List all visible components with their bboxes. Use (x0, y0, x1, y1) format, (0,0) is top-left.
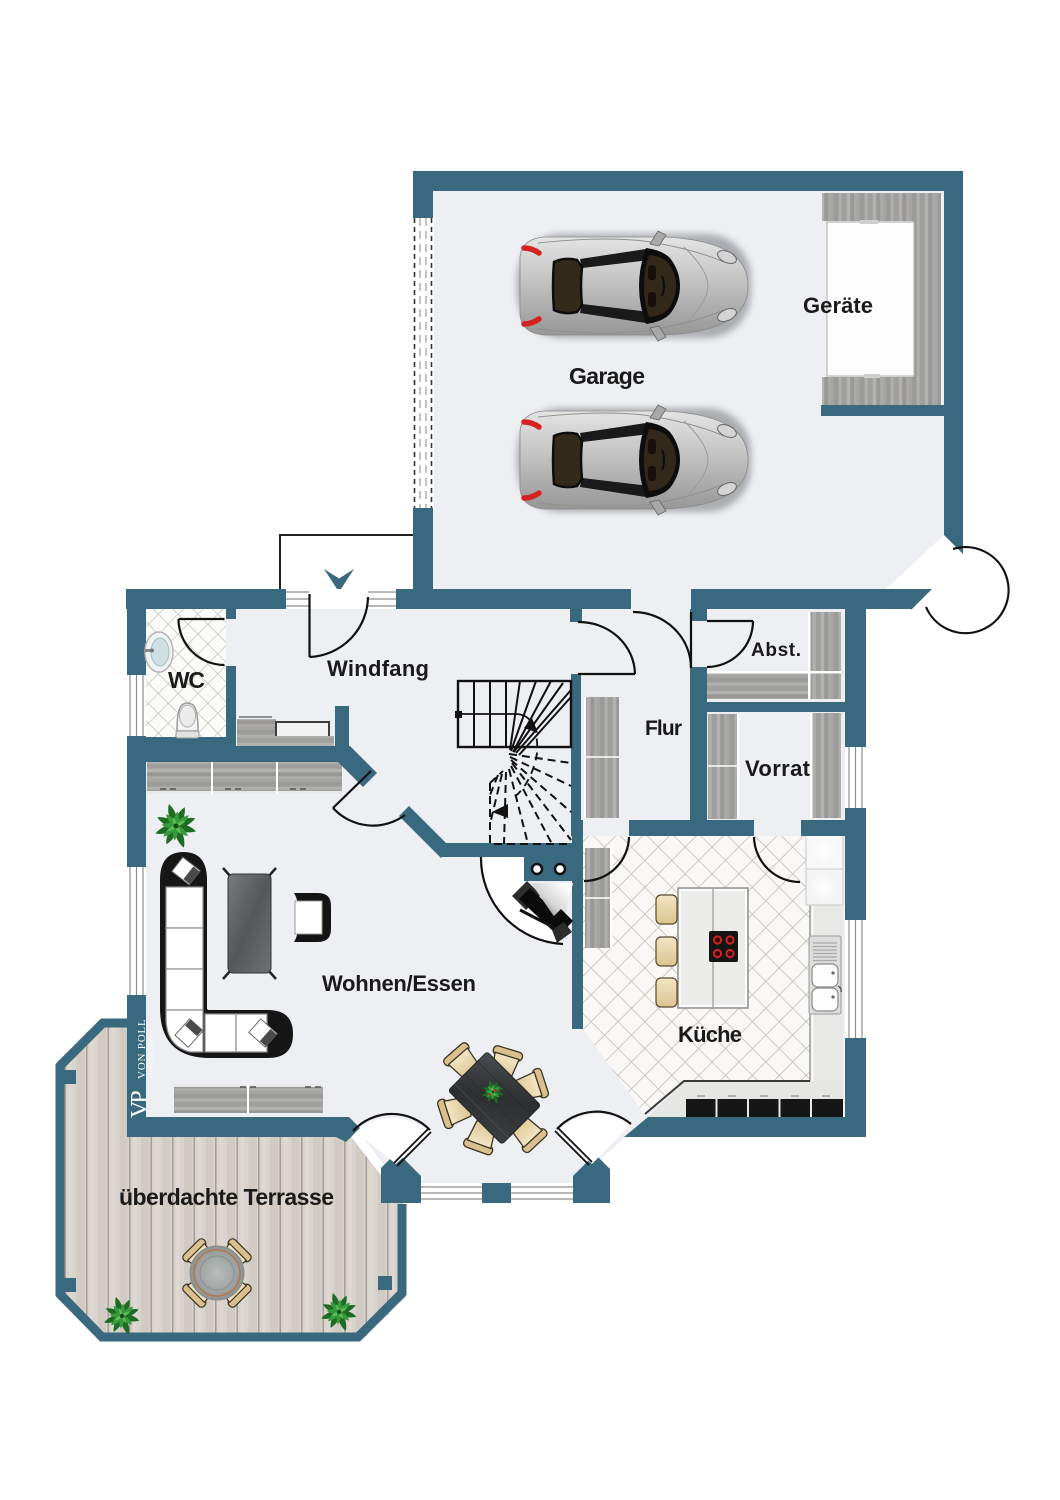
svg-text:Geräte: Geräte (803, 293, 873, 318)
svg-text:Küche: Küche (678, 1022, 742, 1047)
svg-text:Wohnen/Essen: Wohnen/Essen (322, 971, 476, 996)
svg-text:VP: VP (127, 1091, 153, 1118)
svg-text:Flur: Flur (645, 717, 682, 740)
svg-text:Abst.: Abst. (751, 640, 801, 661)
svg-text:Windfang: Windfang (327, 656, 429, 681)
svg-text:VON POLL: VON POLL (136, 1019, 148, 1079)
svg-text:IMMOBILIEN®: IMMOBILIEN® (149, 1033, 155, 1078)
svg-text:WC: WC (168, 667, 205, 693)
svg-text:überdachte Terrasse: überdachte Terrasse (119, 1184, 334, 1210)
svg-text:Garage: Garage (569, 363, 645, 389)
svg-text:Vorrat: Vorrat (745, 756, 811, 781)
